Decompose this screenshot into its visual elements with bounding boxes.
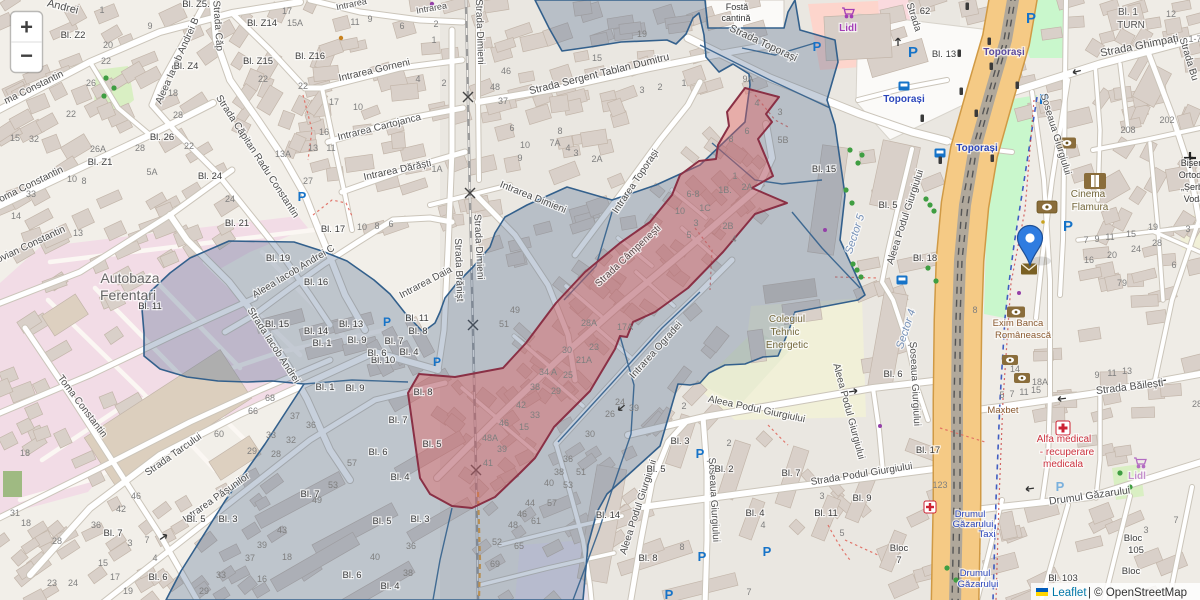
svg-text:Bl. 3: Bl. 3: [218, 514, 237, 525]
svg-text:12: 12: [1166, 9, 1176, 19]
svg-text:Bl. 4: Bl. 4: [745, 508, 764, 519]
svg-text:Bl. 16: Bl. 16: [304, 277, 328, 288]
svg-text:43: 43: [277, 525, 287, 535]
svg-text:105: 105: [1128, 545, 1144, 556]
svg-text:medicala: medicala: [1043, 459, 1083, 470]
svg-text:Energetic: Energetic: [766, 340, 808, 351]
svg-text:32: 32: [286, 435, 296, 445]
svg-text:Bloc: Bloc: [890, 543, 909, 554]
svg-text:23: 23: [589, 342, 599, 352]
svg-text:4: 4: [415, 74, 420, 84]
svg-text:22: 22: [258, 74, 268, 84]
svg-text:66: 66: [248, 406, 258, 416]
svg-text:40: 40: [544, 478, 554, 488]
svg-text:18: 18: [21, 518, 31, 528]
svg-text:4: 4: [565, 143, 570, 153]
svg-text:cantină: cantină: [721, 13, 750, 23]
svg-text:6: 6: [1171, 260, 1176, 270]
svg-text:Maxbet: Maxbet: [987, 405, 1019, 416]
svg-text:1A: 1A: [431, 164, 442, 174]
svg-text:Bl. 3: Bl. 3: [670, 436, 689, 447]
svg-text:3: 3: [777, 107, 782, 117]
svg-text:18: 18: [20, 448, 30, 458]
svg-text:2A: 2A: [741, 182, 752, 192]
svg-text:Bl. 5: Bl. 5: [372, 516, 391, 527]
svg-text:Bl. Z1: Bl. Z1: [88, 157, 113, 168]
svg-text:Alfa medical: Alfa medical: [1037, 434, 1091, 445]
svg-text:−: −: [20, 43, 33, 68]
svg-text:26: 26: [86, 78, 96, 88]
svg-text:17A: 17A: [617, 322, 633, 332]
svg-text:Bl. 17: Bl. 17: [916, 445, 940, 456]
svg-text:22: 22: [101, 56, 111, 66]
svg-text:7: 7: [1173, 515, 1178, 525]
svg-text:15: 15: [1031, 385, 1041, 395]
svg-text:9: 9: [147, 21, 152, 31]
svg-text:202: 202: [1159, 115, 1174, 125]
svg-text:30: 30: [585, 429, 595, 439]
svg-text:Bl. 11: Bl. 11: [405, 313, 429, 324]
svg-text:Taxi: Taxi: [979, 529, 996, 540]
svg-text:Lidl: Lidl: [839, 23, 857, 34]
svg-text:Bl. 103: Bl. 103: [1048, 573, 1078, 584]
svg-text:49: 49: [510, 305, 520, 315]
svg-text:P: P: [298, 189, 307, 204]
svg-text:46: 46: [499, 418, 509, 428]
svg-text:28: 28: [135, 143, 145, 153]
svg-text:Bl. Z15: Bl. Z15: [243, 56, 273, 67]
svg-text:13A: 13A: [275, 149, 291, 159]
svg-text:28: 28: [271, 449, 281, 459]
svg-text:79: 79: [1117, 278, 1127, 288]
svg-text:P: P: [383, 315, 391, 329]
svg-text:48: 48: [508, 520, 518, 530]
svg-text:46: 46: [131, 491, 141, 501]
svg-text:5: 5: [686, 230, 691, 240]
svg-text:37: 37: [498, 96, 508, 106]
svg-text:13: 13: [1122, 366, 1132, 376]
svg-text:2: 2: [726, 438, 731, 448]
svg-text:25: 25: [563, 370, 573, 380]
svg-text:13: 13: [73, 228, 83, 238]
svg-text:Flamura: Flamura: [1072, 202, 1109, 213]
svg-text:36: 36: [563, 454, 573, 464]
svg-text:Colegiul: Colegiul: [769, 314, 805, 325]
svg-text:Biseri: Biseri: [1181, 158, 1200, 168]
svg-text:39: 39: [257, 540, 267, 550]
svg-text:49: 49: [312, 495, 322, 505]
svg-text:Bl. 18: Bl. 18: [913, 253, 937, 264]
svg-text:9: 9: [367, 14, 372, 24]
svg-text:Strada Brănișt: Strada Brănișt: [452, 238, 465, 302]
svg-text:1: 1: [99, 5, 104, 15]
svg-text:Bl. 2: Bl. 2: [714, 464, 733, 475]
svg-text:123: 123: [932, 480, 947, 490]
svg-text:Drumul: Drumul: [960, 568, 991, 579]
svg-text:Bl. Z2: Bl. Z2: [61, 30, 86, 41]
svg-text:Bl. 15: Bl. 15: [812, 164, 836, 175]
svg-text:30: 30: [562, 345, 572, 355]
svg-text:Bl. 5: Bl. 5: [422, 439, 441, 450]
svg-text:Bl. 6: Bl. 6: [342, 570, 361, 581]
svg-text:2: 2: [433, 19, 438, 29]
svg-text:18: 18: [282, 552, 292, 562]
svg-text:1: 1: [681, 78, 686, 88]
svg-text:28: 28: [173, 110, 183, 120]
svg-text:Bl. 6: Bl. 6: [368, 447, 387, 458]
svg-text:Bloc: Bloc: [1124, 533, 1143, 544]
svg-text:Bl. 6: Bl. 6: [367, 348, 386, 359]
svg-text:38: 38: [403, 568, 413, 578]
svg-text:Bl. 7: Bl. 7: [388, 415, 407, 426]
svg-text:P: P: [696, 446, 705, 461]
svg-text:33: 33: [266, 430, 276, 440]
svg-text:Strada Dimieni: Strada Dimieni: [473, 0, 486, 65]
svg-text:51: 51: [499, 319, 509, 329]
svg-text:Bl. 13: Bl. 13: [339, 319, 363, 330]
svg-text:13: 13: [308, 143, 318, 153]
svg-text:2: 2: [657, 82, 662, 92]
svg-text:TURN: TURN: [1117, 20, 1145, 31]
svg-text:8: 8: [81, 176, 86, 186]
svg-text:Bl. Z4: Bl. Z4: [174, 61, 199, 72]
svg-text:1-7: 1-7: [1188, 34, 1200, 44]
svg-text:4: 4: [731, 234, 736, 244]
svg-text:37: 37: [245, 553, 255, 563]
svg-text:Toporași: Toporași: [956, 143, 998, 154]
svg-text:Bl. Z5.: Bl. Z5.: [182, 0, 209, 10]
svg-text:46: 46: [501, 66, 511, 76]
svg-text:27: 27: [303, 176, 313, 186]
svg-text:Bl. 1: Bl. 1: [1118, 7, 1138, 18]
svg-text:P: P: [1026, 10, 1036, 27]
svg-text:2: 2: [681, 401, 686, 411]
svg-text:19: 19: [123, 586, 133, 596]
svg-text:Bl. 11: Bl. 11: [814, 508, 838, 519]
svg-text:65: 65: [514, 541, 524, 551]
svg-text:Bl. Z16: Bl. Z16: [295, 51, 325, 62]
svg-text:46: 46: [517, 509, 527, 519]
svg-text:22: 22: [298, 81, 308, 91]
svg-text:Bl. 3: Bl. 3: [410, 514, 429, 525]
svg-text:Bl. 9: Bl. 9: [347, 335, 366, 346]
svg-text:20: 20: [103, 40, 113, 50]
svg-text:17: 17: [110, 572, 120, 582]
svg-text:Bl. 5: Bl. 5: [186, 514, 205, 525]
svg-text:24: 24: [68, 578, 78, 588]
svg-text:10: 10: [520, 140, 530, 150]
svg-text:28A: 28A: [581, 318, 597, 328]
svg-text:Lidl: Lidl: [1128, 471, 1146, 482]
svg-text:Găzarului: Găzarului: [958, 579, 999, 590]
svg-text:11: 11: [1105, 232, 1114, 242]
svg-text:Bl. 17: Bl. 17: [321, 224, 345, 235]
svg-text:15: 15: [1126, 229, 1136, 239]
svg-text:Bl. 9: Bl. 9: [345, 383, 364, 394]
svg-text:11: 11: [350, 17, 359, 27]
svg-text:53: 53: [328, 480, 338, 490]
svg-text:7: 7: [746, 587, 751, 597]
svg-text:Bl. 4: Bl. 4: [399, 347, 418, 358]
svg-text:8: 8: [972, 305, 977, 315]
svg-text:P: P: [1056, 479, 1065, 494]
svg-text:36: 36: [306, 420, 316, 430]
svg-text:8: 8: [728, 134, 733, 144]
svg-text:Bl. 15: Bl. 15: [265, 319, 289, 330]
svg-text:3: 3: [693, 218, 698, 228]
svg-text:21A: 21A: [576, 355, 592, 365]
svg-text:9: 9: [517, 153, 522, 163]
svg-text:24: 24: [615, 397, 625, 407]
svg-text:6: 6: [399, 21, 404, 31]
svg-text:3: 3: [1185, 224, 1190, 234]
svg-text:8: 8: [374, 221, 379, 231]
svg-text:2: 2: [441, 78, 446, 88]
svg-text:3: 3: [573, 148, 578, 158]
svg-text:61: 61: [531, 516, 541, 526]
svg-text:Bl. 5: Bl. 5: [646, 464, 665, 475]
svg-text:7: 7: [144, 535, 149, 545]
svg-text:5: 5: [839, 528, 844, 538]
svg-text:Bl. 8: Bl. 8: [638, 553, 657, 564]
svg-text:208: 208: [1120, 125, 1135, 135]
svg-text:8: 8: [679, 542, 684, 552]
svg-text:Bl. 6: Bl. 6: [148, 572, 167, 583]
svg-text:6: 6: [388, 219, 393, 229]
svg-text:Bl. 13: Bl. 13: [932, 49, 956, 60]
svg-text:26: 26: [605, 409, 615, 419]
svg-text:Autobaza: Autobaza: [100, 270, 159, 286]
svg-text:36: 36: [91, 520, 101, 530]
svg-text:23: 23: [47, 578, 57, 588]
svg-text:22: 22: [66, 109, 76, 119]
svg-text:11: 11: [1019, 387, 1028, 397]
svg-text:1B.: 1B.: [718, 185, 732, 195]
svg-text:Bl. 4: Bl. 4: [380, 581, 399, 592]
svg-text:Bl. 8: Bl. 8: [413, 387, 432, 398]
svg-text:16: 16: [1084, 255, 1094, 265]
svg-text:Bl. 7: Bl. 7: [384, 336, 403, 347]
svg-text:Bl. 19: Bl. 19: [266, 253, 290, 264]
svg-text:42: 42: [116, 504, 126, 514]
svg-text:69: 69: [490, 559, 500, 569]
svg-text:20: 20: [1107, 250, 1117, 260]
svg-text:Bl. 14: Bl. 14: [596, 510, 620, 521]
svg-text:9A: 9A: [742, 74, 753, 84]
svg-text:6: 6: [509, 123, 514, 133]
svg-text:6-8: 6-8: [686, 189, 699, 199]
svg-text:39: 39: [497, 444, 507, 454]
svg-text:P: P: [698, 549, 707, 564]
svg-text:57: 57: [547, 498, 557, 508]
svg-text:22: 22: [184, 141, 194, 151]
svg-text:Bl. 5: Bl. 5: [878, 200, 897, 211]
svg-text:68: 68: [265, 393, 275, 403]
svg-text:P: P: [908, 44, 918, 61]
svg-text:7: 7: [896, 555, 901, 566]
svg-text:1: 1: [431, 35, 436, 45]
svg-text:P: P: [1063, 218, 1073, 235]
svg-text:28: 28: [1192, 399, 1200, 409]
svg-text:32: 32: [29, 134, 39, 144]
svg-text:| © OpenStreetMap: | © OpenStreetMap: [1088, 587, 1187, 599]
svg-text:11: 11: [1107, 368, 1116, 378]
svg-text:2A: 2A: [591, 154, 602, 164]
svg-text:19: 19: [637, 29, 647, 39]
svg-text:15: 15: [592, 53, 602, 63]
svg-text:„Șerb: „Șerb: [1181, 182, 1200, 192]
svg-text:Ortod: Ortod: [1179, 170, 1200, 180]
svg-text:14: 14: [11, 211, 21, 221]
svg-text:31: 31: [10, 508, 20, 518]
svg-text:Bl. 14: Bl. 14: [304, 326, 328, 337]
svg-text:Exim Banca: Exim Banca: [993, 318, 1044, 329]
svg-text:1C: 1C: [699, 203, 711, 213]
svg-text:37: 37: [290, 411, 300, 421]
svg-text:2B: 2B: [722, 221, 733, 231]
svg-text:33: 33: [530, 410, 540, 420]
svg-text:Vodă: Vodă: [1184, 194, 1200, 204]
svg-text:9: 9: [1094, 370, 1099, 380]
svg-text:Tehnic: Tehnic: [771, 327, 800, 338]
svg-text:Bl. Z14: Bl. Z14: [247, 18, 277, 29]
svg-text:P: P: [665, 587, 674, 600]
svg-text:4: 4: [754, 98, 759, 108]
svg-text:62: 62: [920, 6, 931, 17]
svg-text:33: 33: [216, 570, 226, 580]
svg-text:40: 40: [370, 552, 380, 562]
svg-text:24: 24: [225, 194, 235, 204]
svg-text:10: 10: [675, 206, 685, 216]
svg-text:34 A: 34 A: [539, 367, 557, 377]
svg-text:16: 16: [319, 127, 329, 137]
svg-text:29: 29: [247, 446, 257, 456]
svg-text:17: 17: [282, 6, 292, 16]
svg-text:26A: 26A: [90, 144, 106, 154]
svg-text:10: 10: [67, 174, 77, 184]
svg-text:38: 38: [530, 382, 540, 392]
svg-text:Bl. 7: Bl. 7: [781, 468, 800, 479]
svg-text:15A: 15A: [287, 18, 303, 28]
svg-text:Bl. 4: Bl. 4: [390, 472, 409, 483]
svg-text:Cinema: Cinema: [1071, 189, 1106, 200]
svg-text:+: +: [20, 15, 33, 40]
svg-text:Bl. 9: Bl. 9: [852, 493, 871, 504]
svg-text:Bl. 7: Bl. 7: [103, 528, 122, 539]
svg-text:9: 9: [1094, 234, 1099, 244]
svg-text:7A: 7A: [549, 138, 560, 148]
svg-text:Românească: Românească: [995, 330, 1052, 341]
svg-text:18: 18: [168, 88, 178, 98]
svg-text:15: 15: [519, 422, 529, 432]
svg-text:15: 15: [98, 558, 108, 568]
svg-text:42: 42: [516, 400, 526, 410]
svg-text:16: 16: [257, 574, 267, 584]
svg-text:3: 3: [1143, 525, 1148, 535]
svg-text:Bl. 6: Bl. 6: [883, 369, 902, 380]
svg-text:Toporași: Toporași: [883, 94, 925, 105]
svg-text:4: 4: [760, 520, 765, 530]
svg-text:44: 44: [525, 498, 535, 508]
svg-text:41: 41: [483, 458, 493, 468]
svg-text:1: 1: [732, 171, 737, 181]
svg-text:28: 28: [1152, 238, 1162, 248]
svg-text:P: P: [433, 355, 441, 369]
svg-text:Fostă: Fostă: [726, 2, 749, 12]
svg-text:7: 7: [1083, 235, 1088, 245]
svg-text:51: 51: [576, 467, 586, 477]
svg-text:39: 39: [629, 403, 639, 413]
svg-text:Bl. 11: Bl. 11: [138, 301, 162, 312]
svg-text:14: 14: [1010, 364, 1020, 374]
svg-text:Bl. 26: Bl. 26: [150, 132, 174, 143]
svg-text:Bl. 8: Bl. 8: [408, 326, 427, 337]
svg-text:5: 5: [999, 390, 1004, 400]
svg-text:- recuperare: - recuperare: [1040, 447, 1095, 458]
svg-text:Bl. 21: Bl. 21: [225, 218, 249, 229]
svg-text:Bloc: Bloc: [1122, 566, 1141, 577]
svg-text:Leaflet: Leaflet: [1052, 587, 1087, 599]
svg-text:3: 3: [127, 538, 132, 548]
svg-text:17: 17: [329, 97, 339, 107]
svg-text:Bl. 24: Bl. 24: [198, 171, 222, 182]
svg-text:Toporași: Toporași: [983, 47, 1025, 58]
svg-text:29: 29: [551, 386, 561, 396]
svg-text:P: P: [813, 39, 822, 54]
svg-text:15: 15: [10, 133, 20, 143]
svg-text:7: 7: [1009, 389, 1014, 399]
svg-text:28: 28: [52, 536, 62, 546]
svg-text:53: 53: [563, 480, 573, 490]
svg-text:48: 48: [490, 82, 500, 92]
svg-text:29: 29: [199, 586, 209, 596]
svg-text:33: 33: [26, 189, 36, 199]
svg-text:10: 10: [357, 222, 367, 232]
svg-text:3: 3: [819, 491, 824, 501]
svg-text:8: 8: [557, 126, 562, 136]
svg-text:3: 3: [639, 85, 644, 95]
svg-text:5A: 5A: [146, 167, 157, 177]
svg-text:19: 19: [1148, 222, 1158, 232]
svg-text:11: 11: [326, 143, 335, 153]
svg-text:52: 52: [492, 537, 502, 547]
svg-text:38: 38: [554, 467, 564, 477]
svg-text:4: 4: [152, 553, 157, 563]
svg-text:5B: 5B: [777, 135, 788, 145]
svg-text:6: 6: [744, 126, 749, 136]
svg-text:24: 24: [1131, 244, 1141, 254]
svg-text:36: 36: [406, 541, 416, 551]
svg-text:Bl. 1: Bl. 1: [315, 382, 334, 393]
svg-text:Bl. 1: Bl. 1: [312, 338, 331, 349]
svg-text:57: 57: [347, 458, 357, 468]
svg-text:48A: 48A: [482, 433, 498, 443]
svg-text:P: P: [763, 544, 772, 559]
svg-text:60: 60: [214, 429, 224, 439]
svg-text:10: 10: [353, 102, 363, 112]
